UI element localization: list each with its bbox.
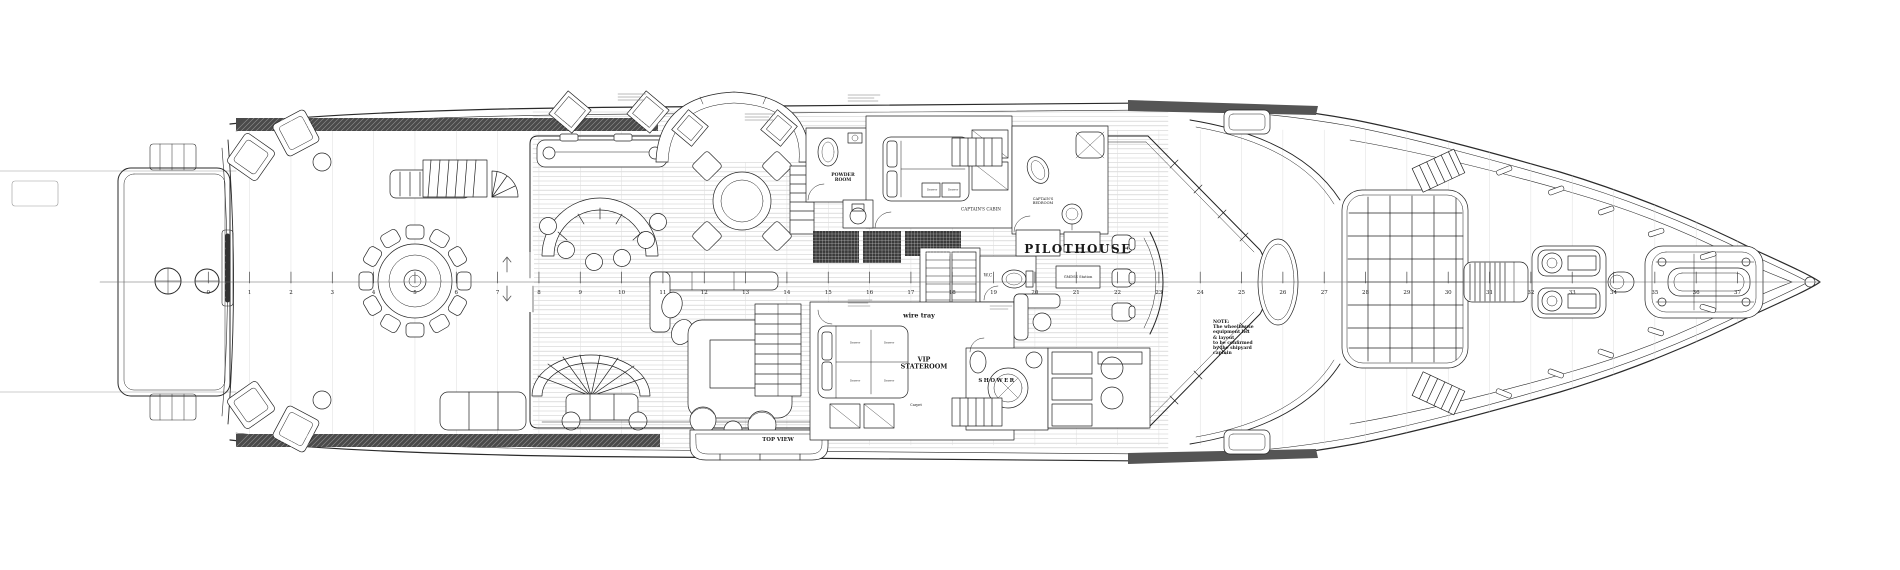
pilothouse-console — [1144, 232, 1163, 334]
frame-number: 20 — [1031, 290, 1038, 296]
wheelhouse-note: NOTE: The wheelhouse equipment list & la… — [1213, 320, 1254, 356]
frame-number: 6 — [455, 290, 459, 296]
fore-bulwark-band — [1128, 100, 1318, 115]
frame-number: 14 — [783, 290, 790, 296]
aft-bench — [440, 392, 526, 430]
deck-hatch — [1224, 110, 1270, 134]
drawer-label: Drawer — [850, 341, 860, 344]
frame-number: 24 — [1197, 290, 1204, 296]
captains-bedroom — [1012, 126, 1108, 234]
carpet-label: Carpet — [910, 404, 922, 408]
wire-tray-label: wire tray — [903, 312, 935, 319]
frame-number: 12 — [701, 290, 708, 296]
frame-number: 15 — [825, 290, 832, 296]
stair-flight — [755, 304, 801, 396]
yacht-deck-plan: 0123456789101112131415161718192021222324… — [0, 0, 1900, 570]
frame-number: 37 — [1734, 290, 1741, 296]
frame-number: 34 — [1610, 290, 1617, 296]
wc-label: W.C — [984, 273, 993, 278]
frame-number: 13 — [742, 290, 749, 296]
frame-number: 1 — [248, 290, 252, 296]
pilothouse-settee — [1014, 294, 1060, 340]
deck-plan-drawing: 0123456789101112131415161718192021222324… — [0, 0, 1900, 570]
powder-room-label: POWDER ROOM — [831, 173, 854, 183]
aft-lounge-chairs — [226, 109, 331, 454]
frame-number: 27 — [1321, 290, 1328, 296]
vip-stateroom-label: VIP STATEROOM — [901, 357, 948, 372]
top-view-label: TOP VIEW — [762, 437, 794, 443]
fore-bulwark-band — [1128, 449, 1318, 464]
frame-number: 16 — [866, 290, 873, 296]
foredeck-skylight-grid — [1342, 190, 1468, 368]
frame-number: 2 — [289, 290, 293, 296]
frame-number: 3 — [331, 290, 335, 296]
side-stairs — [423, 160, 518, 197]
drawer-label: Drawer — [927, 188, 937, 191]
frame-number: 18 — [949, 290, 956, 296]
frame-number: 35 — [1651, 290, 1658, 296]
frame-number: 25 — [1238, 290, 1245, 296]
frame-number: 8 — [537, 290, 541, 296]
frame-number: 33 — [1569, 290, 1576, 296]
frame-number: 31 — [1486, 290, 1493, 296]
drawer-label: Drawer — [884, 379, 894, 382]
captains-cabin-label: CAPTAIN'S CABIN — [961, 208, 1001, 213]
frame-number: 19 — [990, 290, 997, 296]
frame-number: 11 — [659, 290, 666, 296]
frame-number: 29 — [1403, 290, 1410, 296]
frame-number: 22 — [1114, 290, 1121, 296]
drawer-label: Drawer — [850, 379, 860, 382]
stair-arrow — [503, 257, 511, 301]
aft-balcony — [690, 430, 828, 460]
pilothouse-label: PILOTHOUSE — [1024, 243, 1132, 257]
shower-label: SHOWER — [978, 378, 1015, 384]
frame-number: 21 — [1073, 290, 1080, 296]
frame-number: 17 — [907, 290, 914, 296]
frame-number: 36 — [1693, 290, 1700, 296]
drawer-label: Drawer — [948, 188, 958, 191]
frame-number: 5 — [413, 290, 417, 296]
bar-counter — [537, 134, 667, 167]
frame-number: 30 — [1445, 290, 1452, 296]
transom-name-plate — [222, 230, 233, 306]
drawer-label: Drawer — [884, 341, 894, 344]
gmdss-label: GMDSS Station — [1064, 275, 1093, 279]
deck-hatch — [1224, 430, 1270, 454]
frame-number: 26 — [1279, 290, 1286, 296]
frame-number: 32 — [1527, 290, 1534, 296]
frame-number: 0 — [207, 290, 211, 296]
powder-room — [806, 128, 868, 202]
frame-number: 28 — [1362, 290, 1369, 296]
frame-number: 4 — [372, 290, 376, 296]
frame-number: 10 — [618, 290, 625, 296]
captains-bedroom-label: CAPTAIN'S BEDROOM — [1033, 197, 1054, 205]
central-stairwell — [920, 248, 980, 310]
frame-number: 23 — [1155, 290, 1162, 296]
crew-lockers — [1048, 348, 1150, 428]
frame-number: 7 — [496, 290, 500, 296]
frame-number: 9 — [579, 290, 583, 296]
